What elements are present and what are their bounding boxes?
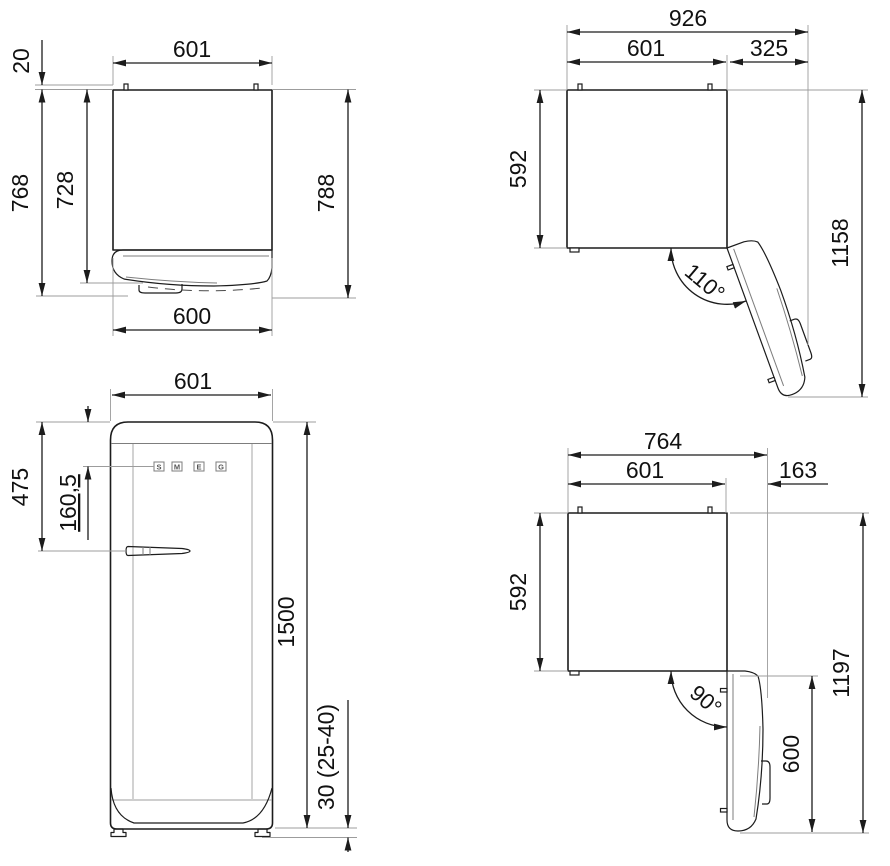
fridge-body-top-view [568, 513, 727, 671]
door-open-90 [721, 671, 771, 831]
foot-mark-left [570, 671, 579, 675]
dim-label-total-depth: 1158 [827, 218, 853, 267]
door-gasket-hidden-line [148, 287, 262, 291]
dimension-drawing-svg: 601 20 768 728 788 600 926 601 [0, 0, 890, 866]
hinge-pin-right [708, 84, 712, 90]
view-top-open-90: 764 601 163 592 1197 600 90° [505, 428, 869, 833]
dim-label-width-top: 601 [173, 36, 211, 62]
door-open-110 [721, 233, 822, 400]
dim-label-total-depth: 1197 [828, 648, 854, 697]
view-front: S M E G 601 475 160,5 1500 30 (25-40) [7, 368, 357, 852]
hinge-pin-left [124, 84, 128, 90]
dim-label-door-projection: 163 [779, 457, 817, 483]
foot-mark-left [570, 248, 579, 252]
door-angle-label: 110° [680, 259, 730, 306]
door-bottom-curve [111, 788, 272, 823]
hinge-pin-left [578, 507, 582, 513]
dim-label-feet: 30 (25-40) [313, 704, 339, 810]
hinge-pin-right [708, 507, 712, 513]
dim-label-top-to-handle: 475 [7, 468, 33, 506]
ext-lines-body-depth [534, 90, 567, 248]
dimension-drawing-page: 601 20 768 728 788 600 926 601 [0, 0, 890, 866]
foot-right [255, 829, 270, 837]
dim-label-body-depth: 592 [505, 150, 531, 188]
foot-left [111, 829, 126, 837]
fridge-front-outline [111, 422, 273, 829]
dim-label-clearance: 20 [8, 48, 34, 74]
fridge-body-top-view [567, 90, 727, 248]
dim-label-depth-with-handle: 788 [313, 174, 339, 212]
dim-label-depth-total: 768 [7, 174, 33, 212]
dim-label-body-depth: 592 [505, 573, 531, 611]
dim-label-total-width: 926 [669, 5, 707, 31]
hinge-pin-left [578, 84, 582, 90]
view-top-closed: 601 20 768 728 788 600 [7, 36, 356, 336]
dim-label-top-to-logo: 160,5 [55, 474, 81, 532]
dim-label-width-bottom: 600 [173, 303, 211, 329]
dim-label-depth-body: 728 [52, 171, 78, 209]
brand-logo: S M E G [154, 462, 226, 472]
door-closed-top-view [112, 250, 272, 293]
ext-lines-body-depth [534, 513, 568, 671]
logo-letter-m: M [174, 463, 180, 472]
dim-label-door-projection: 325 [750, 35, 788, 61]
dim-label-total-width: 764 [644, 428, 683, 454]
dim-label-width: 601 [174, 368, 212, 394]
hinge-pin-right [254, 84, 258, 90]
logo-letter-e: E [196, 463, 201, 472]
dim-label-body-width: 601 [627, 35, 665, 61]
view-top-open-110: 926 601 325 592 1158 110° [505, 5, 868, 401]
dim-label-door-length: 600 [778, 735, 804, 773]
fridge-body-top-view [113, 90, 272, 250]
dim-label-height: 1500 [273, 596, 299, 647]
dim-label-body-width: 601 [626, 457, 664, 483]
door-handle-front [126, 547, 190, 556]
logo-letter-g: G [218, 463, 224, 472]
logo-letter-s: S [156, 463, 161, 472]
